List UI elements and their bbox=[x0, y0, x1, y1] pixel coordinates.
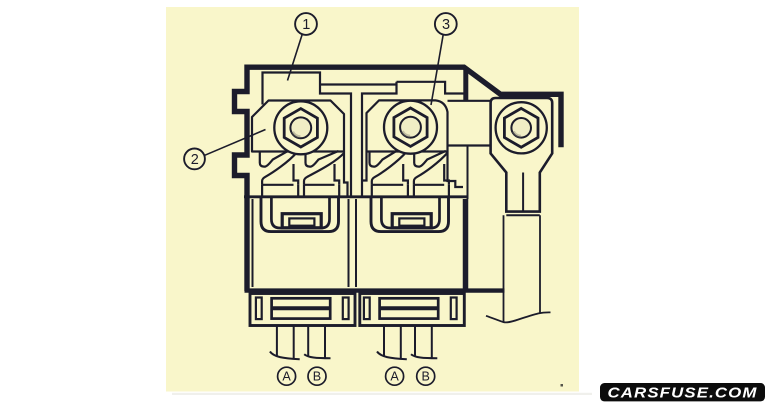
svg-text:A: A bbox=[390, 370, 399, 384]
svg-text:B: B bbox=[313, 370, 321, 384]
svg-text:CARSFUSE.COM: CARSFUSE.COM bbox=[608, 385, 758, 402]
svg-text:B: B bbox=[421, 370, 429, 384]
svg-text:3: 3 bbox=[442, 17, 450, 33]
svg-text:A: A bbox=[282, 370, 291, 384]
svg-text:1: 1 bbox=[302, 17, 310, 33]
svg-text:2: 2 bbox=[191, 152, 199, 168]
